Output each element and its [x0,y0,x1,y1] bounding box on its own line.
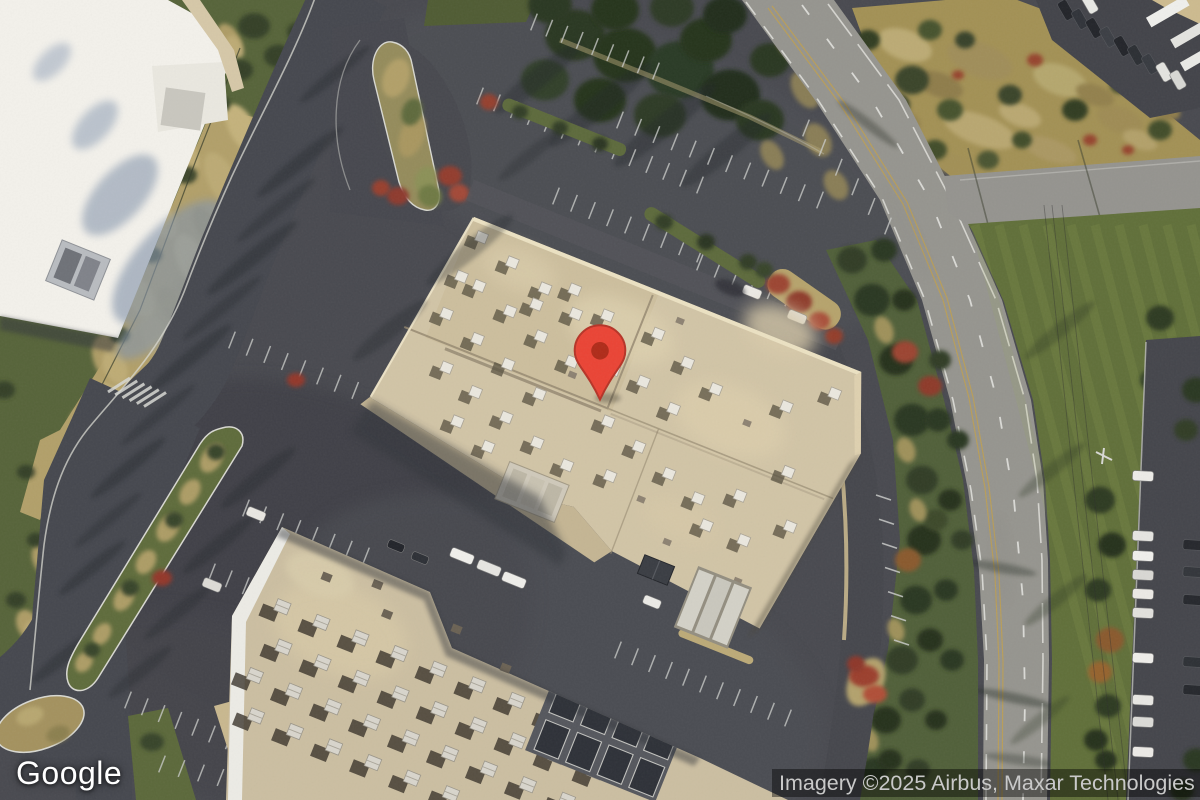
svg-text:Google: Google [16,755,122,791]
svg-text:Imagery ©2025 Airbus, Maxar Te: Imagery ©2025 Airbus, Maxar Technologies [779,771,1195,795]
